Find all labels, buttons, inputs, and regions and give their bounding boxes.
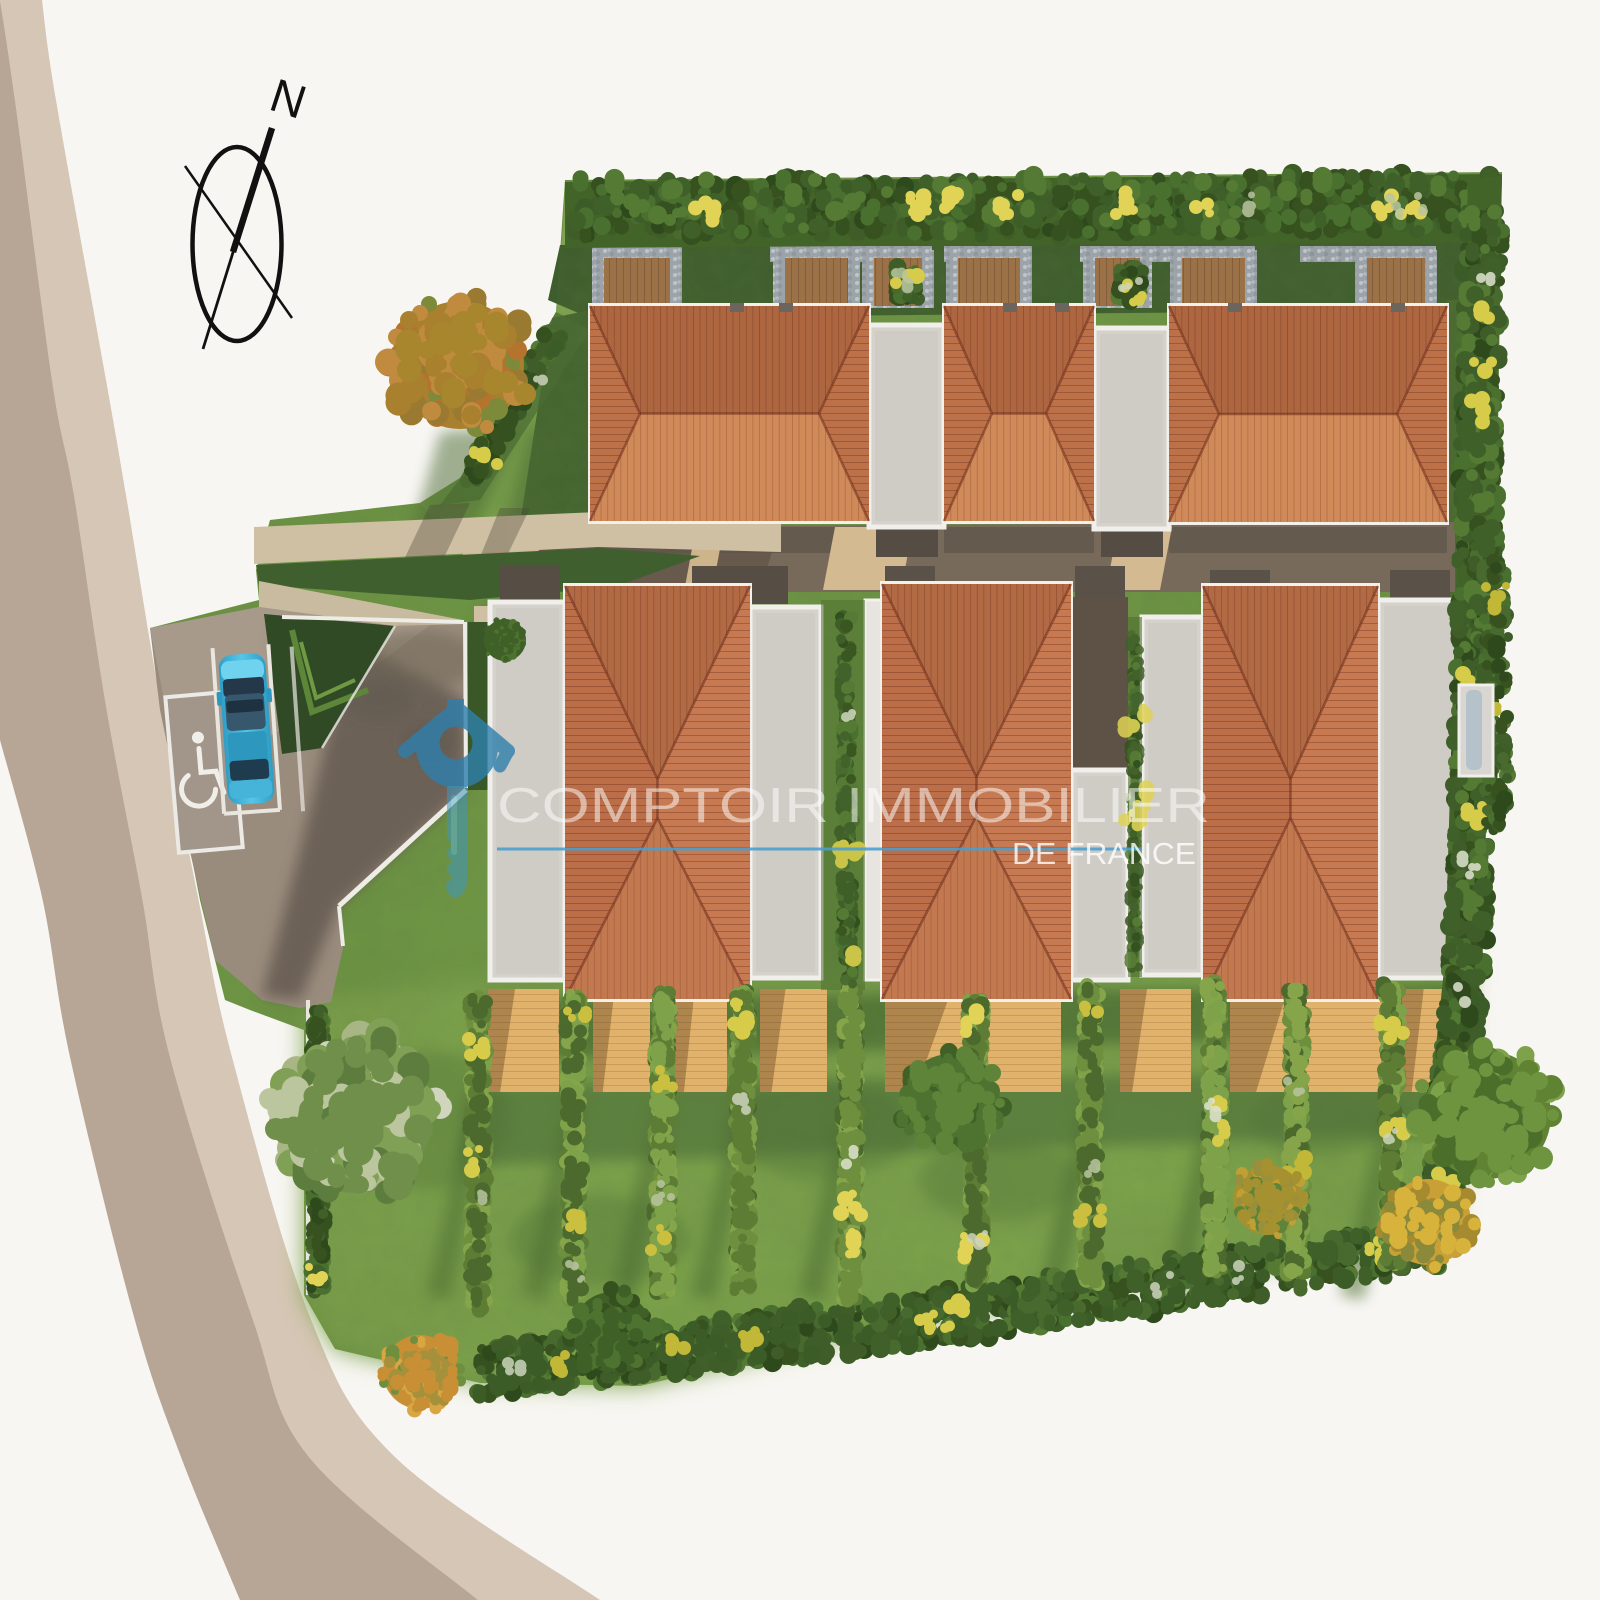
svg-text:DE FRANCE: DE FRANCE — [1012, 836, 1196, 871]
svg-text:COMPTOIR IMMOBILIER: COMPTOIR IMMOBILIER — [497, 779, 1210, 833]
